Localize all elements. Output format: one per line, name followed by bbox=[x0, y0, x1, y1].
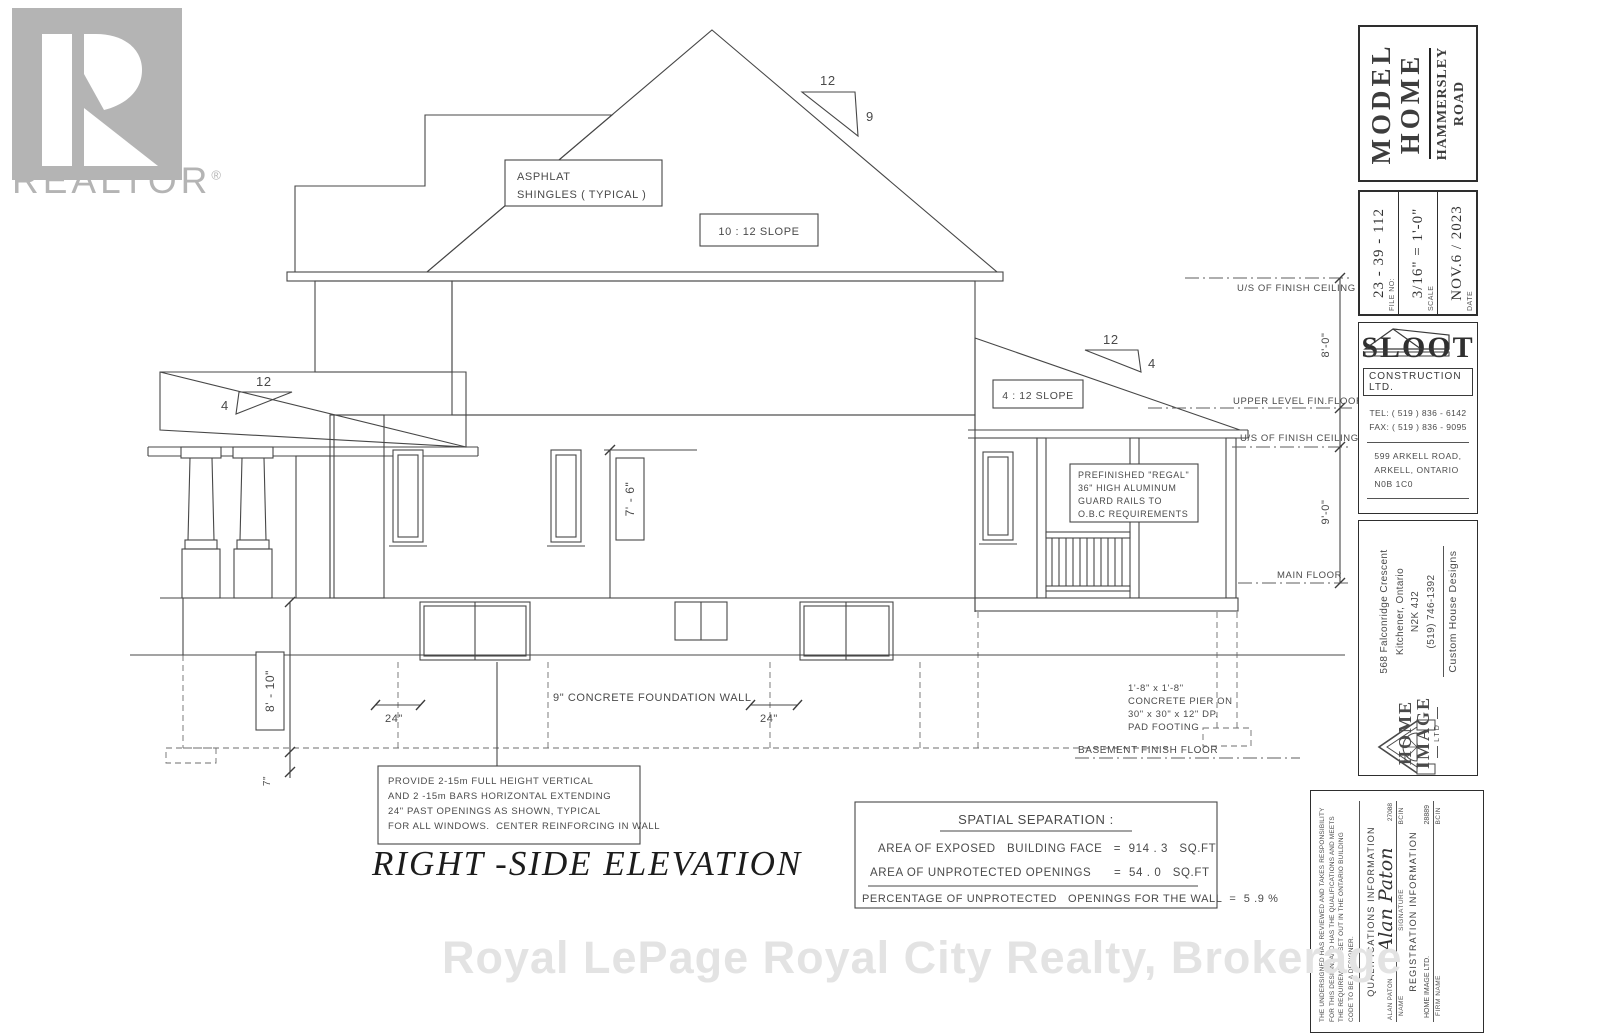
dim-24-label: 24" bbox=[385, 713, 403, 725]
dim-7-label: 7" bbox=[262, 776, 273, 786]
registration-heading: REGISTRATION INFORMATION bbox=[1408, 801, 1418, 1022]
builder-address-line: N0B 1C0 bbox=[1374, 477, 1461, 491]
roof-slope-indicator-right: 12 4 bbox=[1085, 332, 1156, 372]
guard-rail-top bbox=[1046, 532, 1130, 538]
dim-8-0-label: 8'-0" bbox=[1320, 333, 1332, 358]
basement-floor-label: BASEMENT FINISH FLOOR bbox=[1078, 745, 1218, 756]
date-cell: DATE NOV.6 / 2023 bbox=[1438, 192, 1476, 314]
porch-column bbox=[233, 447, 273, 598]
home-image-gable-icon bbox=[1359, 719, 1459, 775]
slope-run-left: 12 bbox=[256, 374, 272, 389]
main-floor-label: MAIN FLOOR bbox=[1277, 570, 1342, 581]
designer-block: HOME IMAGE LTD 568 Falconridge Crescent … bbox=[1358, 520, 1478, 776]
builder-fax: FAX: ( 519 ) 836 - 9095 bbox=[1369, 420, 1467, 434]
dim-8-10: 8' - 10" 7" bbox=[256, 597, 295, 786]
disclaimer-line: THE UNDERSIGNED HAS REVIEWED AND TAKES R… bbox=[1318, 801, 1328, 1022]
guard-rail-bottom bbox=[1046, 586, 1130, 591]
shingles-label-line2: SHINGLES ( TYPICAL ) bbox=[517, 189, 646, 201]
builder-address-line: ARKELL, ONTARIO bbox=[1374, 463, 1461, 477]
divider bbox=[1443, 546, 1444, 678]
firm-bcin-label: BCIN bbox=[1435, 807, 1442, 825]
disclaimer-line: FOR THIS DESIGN, AND HAS THE QUALIFICATI… bbox=[1328, 801, 1338, 1022]
basement-window bbox=[675, 602, 727, 640]
disclaimer-line: CODE TO BE A DESIGNER. bbox=[1347, 801, 1357, 1022]
guardrail-note: PREFINISHED "REGAL" 36" HIGH ALUMINUM GU… bbox=[1070, 464, 1198, 522]
builder-type: CONSTRUCTION LTD. bbox=[1363, 368, 1473, 396]
rebar-note-line: FOR ALL WINDOWS. CENTER REINFORCING IN W… bbox=[388, 821, 660, 832]
upper-level-label: UPPER LEVEL FIN.FLOOR bbox=[1233, 396, 1364, 407]
slope-rise-right: 4 bbox=[1148, 356, 1156, 371]
spatial-separation-table: SPATIAL SEPARATION : AREA OF EXPOSED BUI… bbox=[855, 802, 1278, 908]
main-slope-label: 10 : 12 SLOPE bbox=[700, 214, 818, 246]
designer-bcin-value: 27088 bbox=[1387, 803, 1396, 821]
firm-value: HOME IMAGE LTD. bbox=[1424, 956, 1431, 1018]
low-slope-text: 4 : 12 SLOPE bbox=[1002, 390, 1073, 402]
scale-value: 3/16" = 1'-0" bbox=[1410, 208, 1427, 299]
window bbox=[979, 452, 1017, 544]
rebar-note-line: AND 2 -15m BARS HORIZONTAL EXTENDING bbox=[388, 791, 611, 802]
foundation bbox=[130, 598, 1345, 763]
dim-24-right: 24" bbox=[746, 700, 802, 725]
guard-note-line: PREFINISHED "REGAL" bbox=[1078, 470, 1189, 480]
stone-pier bbox=[296, 456, 330, 598]
realtor-logo bbox=[12, 8, 182, 180]
date-value: NOV.6 / 2023 bbox=[1449, 205, 1466, 300]
basement-window bbox=[420, 602, 530, 660]
date-label: DATE bbox=[1467, 291, 1474, 311]
basement-window bbox=[800, 602, 893, 660]
foundation-wall-label: 9" CONCRETE FOUNDATION WALL bbox=[553, 692, 752, 704]
guard-note-line: 36" HIGH ALUMINUM bbox=[1078, 483, 1176, 493]
qualifications-block: THE UNDERSIGNED HAS REVIEWED AND TAKES R… bbox=[1310, 790, 1484, 1033]
rebar-note: PROVIDE 2-15m FULL HEIGHT VERTICAL AND 2… bbox=[378, 662, 660, 844]
shingles-label: ASPHLAT SHINGLES ( TYPICAL ) bbox=[505, 160, 662, 206]
divider bbox=[1429, 48, 1431, 158]
dim-8-10-label: 8' - 10" bbox=[263, 670, 277, 712]
guard-rail-balusters bbox=[1052, 538, 1122, 586]
guard-note-line: GUARD RAILS TO bbox=[1078, 496, 1162, 506]
disclaimer-line: THE REQUIREMENTS SET OUT IN THE ONTARIO … bbox=[1337, 801, 1347, 1022]
pier-note-line: 1'-8" x 1'-8" bbox=[1128, 683, 1184, 694]
brokerage-watermark: Royal LePage Royal City Realty, Brokerag… bbox=[442, 932, 1162, 984]
porch-floor bbox=[975, 598, 1238, 611]
file-no-cell: FILE NO: 23 - 39 - 112 bbox=[1360, 192, 1399, 314]
window bbox=[547, 450, 585, 546]
drawing-title: RIGHT -SIDE ELEVATION bbox=[372, 844, 802, 884]
firm-name-label: FIRM NAME bbox=[1435, 975, 1442, 1016]
project-name-line1: MODEL bbox=[1367, 43, 1395, 165]
signature-label: SIGNATURE bbox=[1398, 889, 1405, 931]
bcin-label: BCIN bbox=[1398, 807, 1405, 825]
pier-note-line: PAD FOOTING bbox=[1128, 722, 1199, 733]
spatial-row: AREA OF UNPROTECTED OPENINGS = 54 . 0 SQ… bbox=[870, 867, 1210, 879]
upper-wall bbox=[315, 281, 975, 598]
dim-9-0-label: 9'-0" bbox=[1320, 500, 1332, 525]
designer-address-line: Kitchener, Ontario bbox=[1393, 568, 1409, 655]
pier-note-line: CONCRETE PIER ON bbox=[1128, 696, 1233, 707]
builder-block: SLOOT CONSTRUCTION LTD. TEL: ( 519 ) 836… bbox=[1358, 322, 1478, 514]
rebar-note-line: PROVIDE 2-15m FULL HEIGHT VERTICAL bbox=[388, 776, 594, 787]
spatial-title: SPATIAL SEPARATION : bbox=[958, 812, 1114, 827]
low-slope-label: 4 : 12 SLOPE bbox=[993, 380, 1083, 408]
guard-note-line: O.B.C REQUIREMENTS bbox=[1078, 509, 1188, 519]
drawing-sheet: 12 9 ASPHLAT SHINGLES ( TYPICAL ) 10 : 1… bbox=[0, 0, 1600, 1035]
project-name-line2: HOME bbox=[1396, 53, 1424, 155]
designer-tagline: Custom House Designs bbox=[1447, 550, 1459, 672]
builder-roof-logo bbox=[1359, 323, 1453, 357]
slope-run-top: 12 bbox=[820, 73, 836, 88]
project-title-block: MODEL HOME HAMMERSLEY ROAD bbox=[1358, 25, 1478, 182]
project-road-line1: HAMMERSLEY bbox=[1435, 47, 1452, 160]
left-porch-roof bbox=[148, 372, 478, 456]
porch-column bbox=[181, 447, 221, 598]
roof-slope-indicator-top: 12 9 bbox=[802, 73, 874, 136]
window bbox=[389, 450, 427, 546]
main-roof bbox=[287, 30, 1003, 281]
name-label: NAME bbox=[1398, 995, 1405, 1016]
shingles-label-line1: ASPHLAT bbox=[517, 171, 571, 183]
realtor-text: REALTOR bbox=[12, 160, 211, 201]
file-no-label: FILE NO: bbox=[1389, 278, 1396, 311]
concrete-pier bbox=[1203, 612, 1251, 746]
dim-7-6-label: 7' - 6" bbox=[623, 482, 637, 517]
file-scale-date-block: FILE NO: 23 - 39 - 112 SCALE 3/16" = 1'-… bbox=[1358, 190, 1478, 316]
roof-slope-indicator-left: 12 4 bbox=[221, 374, 292, 414]
project-road-line2: ROAD bbox=[1452, 81, 1469, 126]
dim-24-label: 24" bbox=[760, 713, 778, 725]
designer-phone: (519) 746-1392 bbox=[1424, 575, 1440, 649]
divider bbox=[1437, 707, 1438, 719]
home-image-logo: HOME IMAGE LTD bbox=[1396, 696, 1441, 769]
slope-run-right: 12 bbox=[1103, 332, 1119, 347]
designer-address-line: N2K 4J2 bbox=[1408, 591, 1424, 632]
spatial-row: PERCENTAGE OF UNPROTECTED OPENINGS FOR T… bbox=[862, 893, 1278, 905]
slope-rise-top: 9 bbox=[866, 109, 874, 124]
us-ceiling-upper-label: U/S OF FINISH CEILING bbox=[1237, 283, 1356, 294]
realtor-wordmark: REALTOR® bbox=[12, 160, 225, 202]
divider bbox=[1367, 442, 1468, 443]
dim-7-6: 7' - 6" bbox=[604, 445, 697, 598]
designer-address-line: 568 Falconridge Crescent bbox=[1377, 549, 1393, 673]
scale-label: SCALE bbox=[1428, 286, 1435, 311]
us-ceiling-lower-label: U/S OF FINISH CEILING bbox=[1240, 433, 1359, 444]
slope-rise-left: 4 bbox=[221, 398, 229, 413]
divider bbox=[1359, 801, 1360, 1022]
registered-mark: ® bbox=[211, 168, 225, 183]
builder-address-line: 599 ARKELL ROAD, bbox=[1374, 449, 1461, 463]
rebar-note-line: 24" PAST OPENINGS AS SHOWN, TYPICAL bbox=[388, 806, 601, 817]
builder-tel: TEL: ( 519 ) 836 - 6142 bbox=[1369, 406, 1467, 420]
designer-printed-name: ALAN PATON bbox=[1388, 978, 1396, 1020]
firm-bcin-value: 28889 bbox=[1424, 805, 1431, 824]
spatial-row: AREA OF EXPOSED BUILDING FACE = 914 . 3 … bbox=[878, 843, 1216, 855]
scale-cell: SCALE 3/16" = 1'-0" bbox=[1399, 192, 1438, 314]
file-no-value: 23 - 39 - 112 bbox=[1371, 208, 1388, 298]
pier-note-line: 30" x 30" x 12" DP. bbox=[1128, 709, 1219, 720]
main-slope-text: 10 : 12 SLOPE bbox=[718, 226, 799, 238]
divider bbox=[1367, 498, 1468, 499]
